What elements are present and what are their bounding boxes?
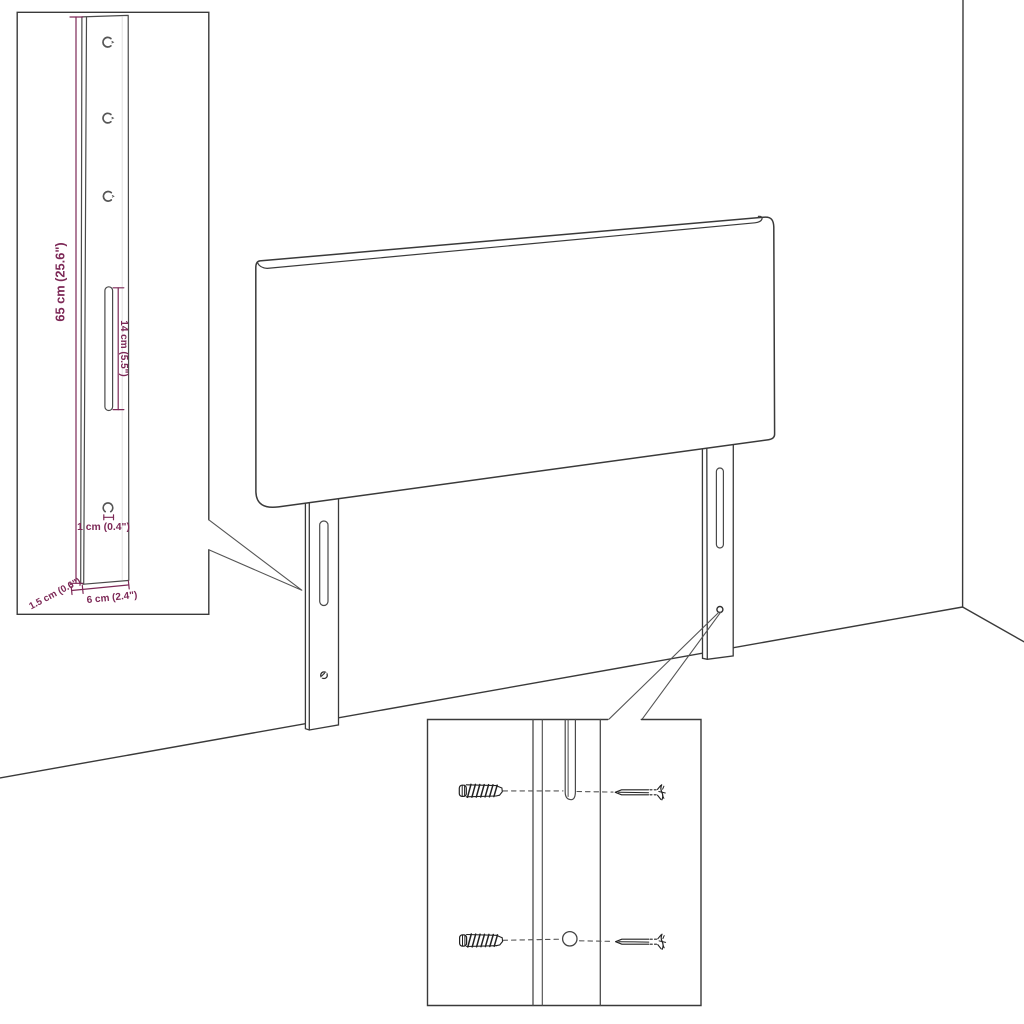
svg-text:1 cm (0.4"): 1 cm (0.4") — [77, 522, 130, 533]
svg-text:65 cm (25.6"): 65 cm (25.6") — [53, 242, 68, 321]
svg-text:14 cm (5.5"): 14 cm (5.5") — [118, 320, 129, 376]
